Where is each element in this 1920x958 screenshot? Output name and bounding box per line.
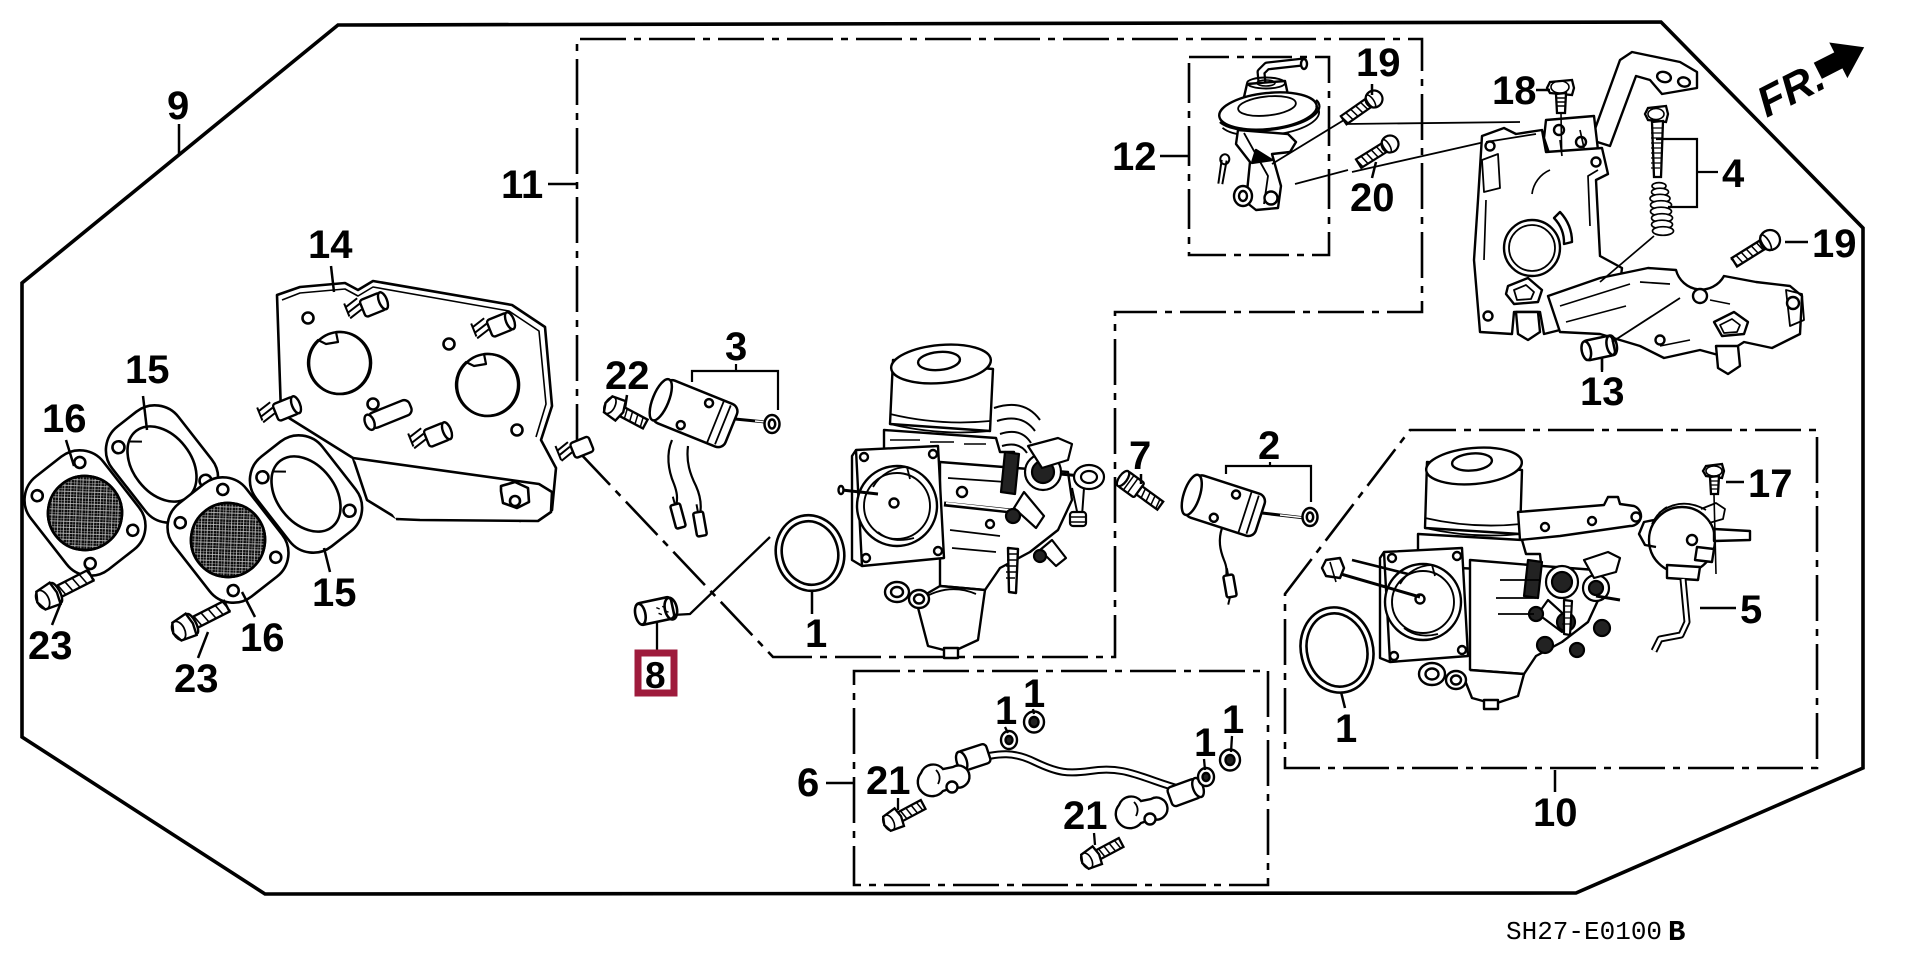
svg-text:1: 1 [805, 612, 827, 656]
svg-text:3: 3 [725, 325, 747, 369]
svg-text:5: 5 [1740, 588, 1762, 632]
svg-text:SH27-E0100: SH27-E0100 [1506, 917, 1662, 947]
svg-text:9: 9 [167, 84, 189, 128]
svg-text:2: 2 [1258, 424, 1280, 468]
svg-text:16: 16 [240, 616, 285, 660]
svg-text:1: 1 [1335, 707, 1357, 751]
svg-text:15: 15 [312, 571, 357, 615]
svg-text:11: 11 [501, 163, 543, 207]
svg-text:23: 23 [28, 624, 73, 668]
svg-text:7: 7 [1129, 434, 1151, 478]
svg-text:8: 8 [645, 655, 666, 696]
svg-text:21: 21 [866, 759, 911, 803]
svg-text:22: 22 [605, 354, 650, 398]
svg-text:17: 17 [1748, 462, 1793, 506]
svg-text:14: 14 [308, 223, 353, 267]
svg-text:23: 23 [174, 657, 219, 701]
svg-text:13: 13 [1580, 370, 1625, 414]
svg-text:1: 1 [1194, 721, 1216, 765]
svg-text:15: 15 [125, 348, 170, 392]
svg-text:16: 16 [42, 397, 87, 441]
svg-text:20: 20 [1350, 176, 1395, 220]
svg-text:4: 4 [1722, 152, 1745, 196]
svg-text:19: 19 [1812, 222, 1857, 266]
svg-text:18: 18 [1492, 69, 1537, 113]
svg-text:12: 12 [1112, 135, 1157, 179]
svg-text:21: 21 [1063, 794, 1108, 838]
svg-text:1: 1 [995, 689, 1017, 733]
svg-text:6: 6 [797, 761, 819, 805]
svg-text:B: B [1668, 916, 1685, 949]
svg-text:19: 19 [1356, 41, 1401, 85]
svg-text:10: 10 [1533, 791, 1578, 835]
svg-text:1: 1 [1222, 698, 1244, 742]
